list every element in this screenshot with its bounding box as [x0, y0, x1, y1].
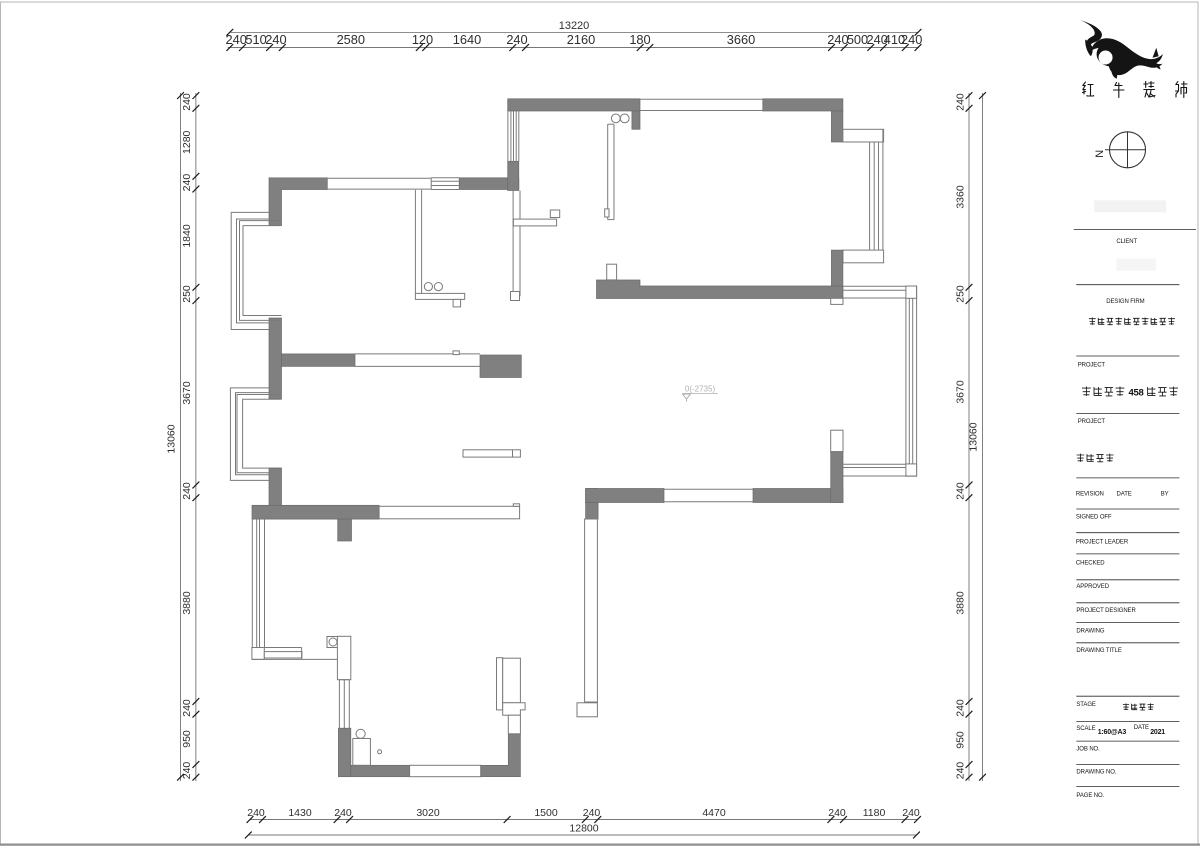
svg-text:BY: BY [1161, 492, 1169, 498]
svg-text:240: 240 [181, 482, 193, 500]
svg-text:180: 180 [629, 32, 650, 47]
svg-text:240: 240 [265, 32, 286, 47]
svg-text:REVISION: REVISION [1076, 492, 1104, 498]
svg-text:PROJECT DESIGNER: PROJECT DESIGNER [1076, 608, 1136, 614]
svg-text:N: N [1094, 150, 1106, 158]
svg-text:120: 120 [412, 32, 433, 47]
svg-text:250: 250 [954, 285, 966, 303]
svg-text:240: 240 [181, 762, 193, 780]
svg-text:PAGE NO.: PAGE NO. [1076, 793, 1104, 799]
svg-text:3880: 3880 [954, 591, 966, 615]
svg-text:JOB NO.: JOB NO. [1076, 746, 1100, 752]
svg-text:DRAWING TITLE: DRAWING TITLE [1076, 648, 1121, 654]
svg-text:1500: 1500 [534, 807, 558, 819]
svg-text:PROJECT: PROJECT [1078, 419, 1106, 425]
svg-text:SIGNED OFF: SIGNED OFF [1076, 515, 1112, 521]
svg-text:1180: 1180 [863, 807, 886, 819]
svg-text:13220: 13220 [559, 20, 590, 32]
svg-text:CLIENT: CLIENT [1116, 239, 1137, 245]
svg-text:DATE: DATE [1134, 725, 1149, 731]
svg-text:1:60@A3: 1:60@A3 [1098, 729, 1127, 736]
svg-text:500: 500 [847, 32, 868, 47]
svg-text:0(-2735): 0(-2735) [685, 385, 716, 394]
svg-text:DRAWING NO.: DRAWING NO. [1076, 770, 1116, 776]
svg-text:240: 240 [583, 807, 601, 819]
svg-text:240: 240 [954, 482, 966, 500]
svg-text:4470: 4470 [702, 807, 726, 819]
svg-text:240: 240 [247, 807, 265, 819]
svg-text:12800: 12800 [569, 823, 598, 835]
svg-text:240: 240 [954, 762, 966, 780]
svg-text:1430: 1430 [288, 807, 312, 819]
svg-text:13060: 13060 [967, 422, 979, 451]
svg-text:1640: 1640 [453, 32, 481, 47]
svg-text:240: 240 [334, 807, 352, 819]
svg-text:240: 240 [827, 32, 848, 47]
svg-text:CHECKED: CHECKED [1076, 561, 1105, 567]
svg-text:240: 240 [181, 174, 193, 192]
svg-text:240: 240 [901, 32, 922, 47]
svg-text:2580: 2580 [337, 32, 365, 47]
svg-text:240: 240 [181, 699, 193, 717]
svg-text:3020: 3020 [416, 807, 440, 819]
svg-text:DATE: DATE [1117, 492, 1132, 498]
svg-text:458: 458 [1129, 387, 1144, 398]
svg-text:3360: 3360 [954, 185, 966, 209]
svg-text:3670: 3670 [954, 380, 966, 404]
svg-text:3660: 3660 [727, 32, 755, 47]
svg-text:1280: 1280 [181, 130, 193, 154]
svg-text:DESIGN FIRM: DESIGN FIRM [1106, 299, 1144, 305]
svg-text:2021: 2021 [1150, 729, 1165, 736]
svg-text:STAGE: STAGE [1076, 702, 1095, 708]
svg-text:APPROVED: APPROVED [1076, 584, 1109, 590]
svg-text:240: 240 [506, 32, 527, 47]
svg-text:13060: 13060 [166, 424, 178, 453]
svg-text:950: 950 [181, 730, 193, 748]
svg-text:DRAWING: DRAWING [1076, 628, 1105, 634]
svg-text:240: 240 [954, 699, 966, 717]
svg-text:3670: 3670 [181, 381, 193, 405]
svg-text:1840: 1840 [181, 224, 193, 248]
svg-text:250: 250 [181, 285, 193, 303]
svg-text:950: 950 [954, 731, 966, 749]
svg-text:PROJECT: PROJECT [1078, 363, 1106, 369]
svg-text:SCALE: SCALE [1076, 726, 1095, 732]
svg-text:510: 510 [245, 32, 266, 47]
svg-text:240: 240 [902, 807, 920, 819]
svg-text:240: 240 [828, 807, 846, 819]
svg-text:PROJECT LEADER: PROJECT LEADER [1076, 539, 1129, 545]
svg-text:240: 240 [181, 93, 193, 111]
svg-text:240: 240 [226, 32, 247, 47]
svg-text:3880: 3880 [181, 591, 193, 615]
svg-text:240: 240 [954, 93, 966, 111]
svg-text:2160: 2160 [567, 32, 595, 47]
